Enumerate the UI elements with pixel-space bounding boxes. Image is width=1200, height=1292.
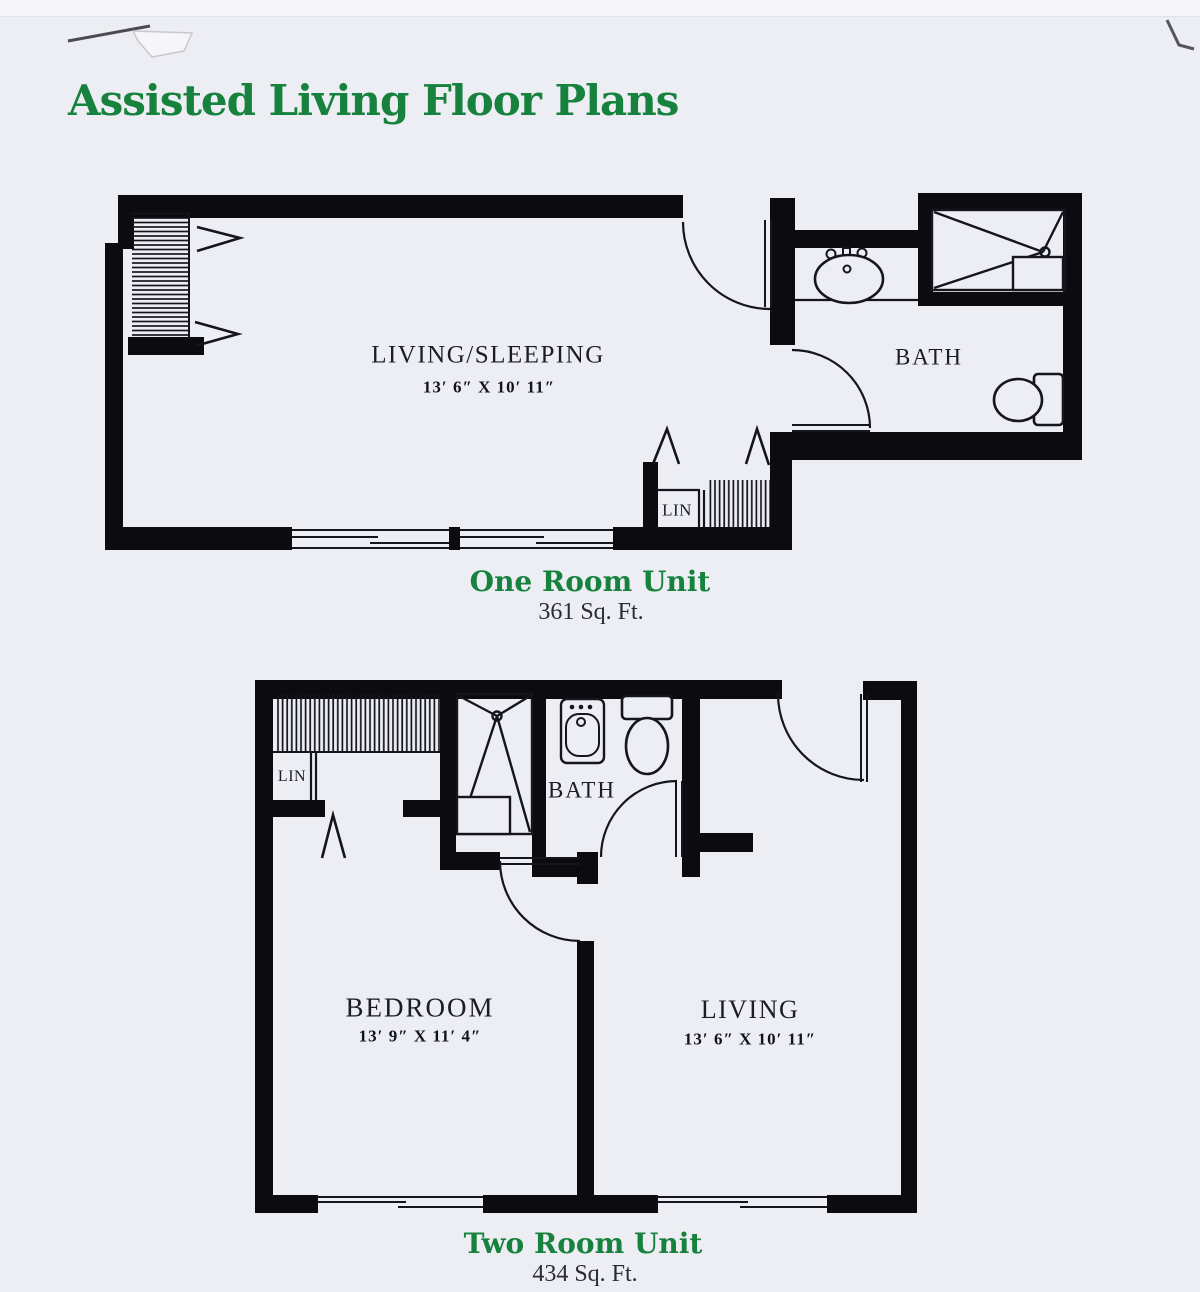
plan2-bedroom-dimensions: 13′ 9″ X 11′ 4″ [359,1028,482,1045]
window-glyph [658,1195,827,1208]
plan1-living-sleeping-label: LIVING/SLEEPING [371,343,605,368]
plan2-bath-label: BATH [548,779,616,802]
plan1-linen-label: LIN [662,502,692,519]
hanger-icon [195,227,240,346]
hanger-icon [653,429,769,465]
sink-icon [815,248,883,303]
plan1-bath-label: BATH [895,346,963,369]
plan1-living-sleeping-dimensions: 13′ 6″ X 10′ 11″ [423,379,555,396]
shower-icon [457,694,532,834]
plan1-walls [105,193,1082,550]
scan-artifact-top-right [1167,20,1194,49]
closet-rod-hatch [707,480,770,527]
page-title: Assisted Living Floor Plans [68,76,678,125]
plan1-area: 361 Sq. Ft. [538,600,643,624]
plan2-living-label: LIVING [701,997,800,1023]
entry-door-swing [683,220,771,309]
plan2-linen-label: LIN [278,769,306,785]
window-glyph [292,527,449,550]
plan2-caption: Two Room Unit [464,1230,703,1258]
shower-icon [932,210,1065,290]
entry-door-swing [778,694,867,782]
floor-plan-two [255,680,917,1213]
sink-icon [561,699,604,763]
floor-plan-drawing [0,0,1200,1292]
plan2-area: 434 Sq. Ft. [532,1262,637,1286]
toilet-icon [994,374,1063,425]
closet-rod-hatch [132,212,188,338]
linen-closet [311,752,316,800]
bath-door-swing [792,350,870,431]
scan-artifact-top-left [68,26,192,57]
plan2-living-dimensions: 13′ 6″ X 10′ 11″ [684,1031,816,1048]
hanger-icon [322,815,345,858]
plan1-caption: One Room Unit [470,568,711,596]
window-glyph [318,1195,483,1208]
toilet-icon [622,696,672,774]
scanned-floor-plan-page: Assisted Living Floor Plans LIVING/SLEEP… [0,0,1200,1292]
plan2-bedroom-label: BEDROOM [345,995,494,1022]
window-glyph [460,527,613,550]
plan2-walls [255,680,917,1213]
closet-rod-hatch [276,694,440,751]
floor-plan-one [105,193,1082,550]
